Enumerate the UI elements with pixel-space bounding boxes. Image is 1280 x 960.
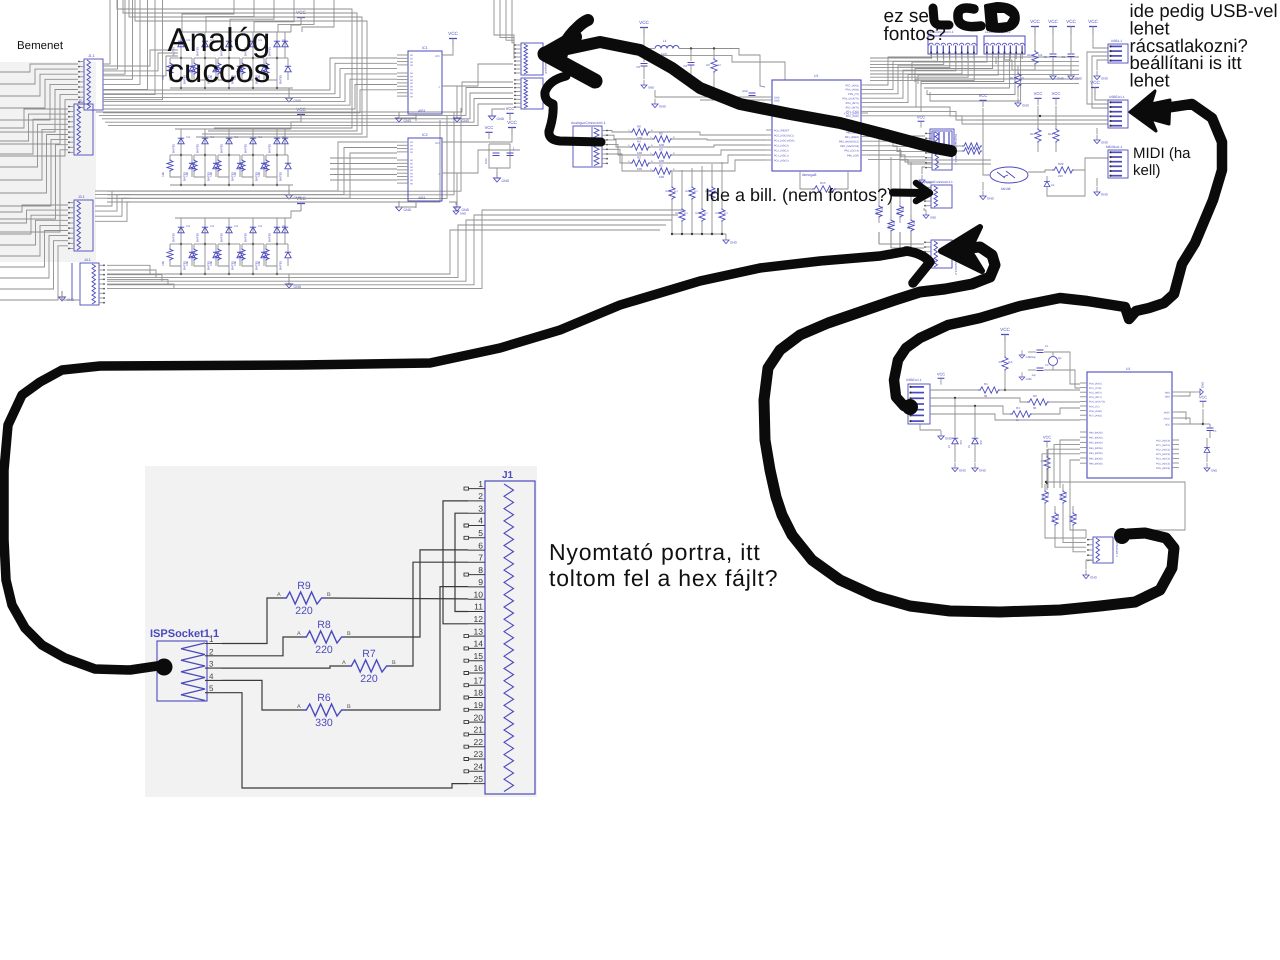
svg-text:R2: R2 (637, 156, 641, 160)
svg-text:C1: C1 (1045, 345, 1049, 348)
svg-text:13: 13 (474, 626, 484, 636)
svg-text:USB1.1: USB1.1 (1111, 39, 1122, 43)
svg-text:GND: GND (1026, 378, 1032, 381)
svg-text:100: 100 (659, 143, 664, 147)
svg-text:C8: C8 (1044, 56, 1048, 59)
svg-text:PC2_(ADC2): PC2_(ADC2) (774, 149, 789, 152)
svg-text:4k7: 4k7 (674, 190, 679, 193)
svg-text:GND: GND (987, 197, 994, 201)
svg-text:R10: R10 (1027, 54, 1032, 57)
svg-text:VCC: VCC (506, 107, 515, 112)
svg-text:7: 7 (478, 553, 483, 563)
svg-text:USBExt1.1: USBExt1.1 (1109, 95, 1125, 99)
svg-text:22: 22 (1021, 77, 1024, 80)
svg-text:GND: GND (497, 117, 505, 121)
svg-text:GND: GND (1101, 193, 1108, 197)
svg-text:VCC: VCC (1165, 423, 1170, 426)
svg-text:9: 9 (478, 577, 483, 587)
svg-text:GND: GND (404, 208, 412, 212)
svg-text:VCC: VCC (639, 20, 649, 25)
svg-text:330: 330 (897, 210, 900, 215)
svg-text:PD3_(INT1): PD3_(INT1) (1089, 396, 1102, 399)
svg-text:68: 68 (1033, 406, 1037, 410)
svg-text:GND: GND (1022, 104, 1029, 108)
svg-text:A: A (277, 592, 281, 598)
svg-text:BAT85: BAT85 (172, 144, 176, 153)
svg-text:PC0_(ADC0): PC0_(ADC0) (1156, 439, 1170, 442)
svg-text:R18: R18 (902, 206, 905, 211)
svg-text:R20: R20 (665, 190, 670, 193)
svg-text:D1: D1 (187, 135, 191, 139)
svg-text:VCC: VCC (507, 120, 517, 125)
svg-text:USBExt1.1: USBExt1.1 (906, 378, 922, 382)
svg-text:B: B (347, 631, 351, 637)
svg-text:VCC: VCC (1043, 435, 1052, 439)
svg-text:PD1_(TXD): PD1_(TXD) (1089, 387, 1102, 390)
svg-text:GND: GND (742, 90, 748, 93)
svg-text:GND: GND (930, 216, 937, 219)
svg-text:PB2_(SS/OC1B): PB2_(SS/OC1B) (840, 145, 859, 148)
svg-text:15: 15 (474, 651, 484, 661)
svg-text:PB6_(MOSI): PB6_(MOSI) (1089, 463, 1103, 466)
svg-text:PD6_(AIN0): PD6_(AIN0) (1089, 410, 1102, 413)
svg-text:6: 6 (478, 540, 483, 550)
svg-text:AREF: AREF (1164, 411, 1171, 414)
svg-text:PC1_(ADC1): PC1_(ADC1) (1156, 444, 1170, 447)
svg-text:20: 20 (474, 712, 484, 722)
svg-text:J3.1: J3.1 (78, 195, 85, 199)
svg-text:330: 330 (1042, 495, 1045, 500)
svg-text:5: 5 (478, 528, 483, 538)
svg-text:PD2_(INT0): PD2_(INT0) (846, 106, 860, 109)
svg-text:GND: GND (1201, 381, 1204, 388)
svg-text:R17: R17 (893, 220, 896, 225)
svg-text:GND: GND (1075, 77, 1082, 81)
svg-text:11: 11 (474, 602, 483, 612)
svg-text:1: 1 (209, 635, 214, 644)
svg-text:PB1_(OC1A): PB1_(OC1A) (844, 150, 859, 153)
svg-text:GND: GND (730, 241, 737, 245)
svg-text:GND: GND (959, 469, 966, 473)
svg-text:GND: GND (502, 179, 510, 183)
svg-text:2: 2 (478, 491, 483, 501)
svg-text:8: 8 (478, 565, 483, 575)
svg-text:R6: R6 (317, 692, 331, 704)
svg-text:PD0_(RXD): PD0_(RXD) (1089, 382, 1102, 385)
svg-text:B: B (347, 704, 351, 710)
svg-text:R12: R12 (1010, 77, 1015, 80)
svg-text:2: 2 (209, 647, 214, 656)
svg-text:BAT85: BAT85 (279, 172, 283, 181)
svg-text:4k7: 4k7 (704, 212, 709, 215)
svg-text:4: 4 (209, 672, 214, 681)
svg-text:PC0_(ADC0): PC0_(ADC0) (774, 159, 789, 162)
svg-text:C9: C9 (1062, 56, 1066, 59)
svg-text:VCC: VCC (435, 55, 440, 58)
svg-text:6N138: 6N138 (1001, 187, 1011, 191)
svg-text:GND: GND (404, 119, 412, 123)
svg-text:VCC: VCC (1030, 19, 1040, 24)
svg-text:VCC: VCC (435, 142, 440, 145)
svg-text:PB1_(MOSI): PB1_(MOSI) (1089, 437, 1103, 440)
svg-text:220: 220 (1058, 174, 1063, 178)
svg-text:12: 12 (474, 614, 484, 624)
svg-text:3: 3 (478, 503, 483, 513)
svg-text:R8: R8 (317, 619, 331, 631)
svg-text:GND: GND (774, 99, 780, 102)
svg-text:AnalogueConnector1.1: AnalogueConnector1.1 (571, 121, 606, 125)
svg-text:C5: C5 (1213, 430, 1217, 433)
svg-text:GND: GND (659, 105, 666, 109)
svg-text:L1: L1 (663, 39, 667, 43)
svg-text:VCC: VCC (1034, 92, 1043, 97)
svg-text:Ide a bill. (nem fontos?): Ide a bill. (nem fontos?) (705, 185, 893, 205)
svg-text:220: 220 (315, 644, 333, 656)
svg-text:VCC: VCC (1199, 395, 1208, 399)
svg-text:R24: R24 (695, 212, 700, 215)
svg-text:16: 16 (474, 663, 484, 673)
svg-text:R25: R25 (715, 212, 720, 215)
svg-text:PD2_(INT0): PD2_(INT0) (1089, 392, 1102, 395)
svg-text:lehet: lehet (1130, 70, 1170, 91)
svg-text:GND: GND (460, 212, 467, 215)
svg-text:PC6_(ADC6): PC6_(ADC6) (1156, 467, 1170, 470)
svg-text:MIDIOut1.1: MIDIOut1.1 (1106, 145, 1123, 149)
svg-text:PC5_(ADC5): PC5_(ADC5) (1156, 462, 1170, 465)
svg-text:330: 330 (908, 224, 911, 229)
svg-text:VCC: VCC (917, 115, 926, 119)
svg-text:VCC: VCC (296, 10, 306, 15)
svg-text:GND: GND (1090, 576, 1097, 580)
svg-text:4k7: 4k7 (724, 212, 729, 215)
svg-text:25: 25 (474, 774, 484, 784)
svg-text:D1: D1 (235, 224, 239, 228)
svg-text:IC1: IC1 (422, 46, 428, 50)
svg-text:D1: D1 (283, 38, 287, 42)
svg-text:R23: R23 (675, 212, 680, 215)
svg-text:220: 220 (360, 673, 378, 685)
svg-text:BAT85: BAT85 (244, 144, 248, 153)
svg-text:1: 1 (478, 479, 483, 489)
svg-text:PB0_(MOSI): PB0_(MOSI) (1089, 431, 1103, 434)
svg-text:23: 23 (474, 749, 484, 759)
svg-text:R9: R9 (297, 580, 311, 592)
svg-text:VCC: VCC (485, 126, 494, 131)
svg-text:Nyomtató portra, itt: Nyomtató portra, itt (549, 539, 761, 565)
svg-text:PC3_(ADC3): PC3_(ADC3) (774, 144, 789, 147)
svg-text:Atmega8: Atmega8 (802, 173, 816, 177)
svg-text:330: 330 (1052, 517, 1055, 522)
svg-text:GND: GND (648, 86, 655, 89)
svg-text:VCC: VCC (937, 372, 946, 376)
svg-text:PB3_(MOSI): PB3_(MOSI) (1089, 447, 1103, 450)
svg-text:VCC: VCC (296, 107, 306, 112)
svg-text:100: 100 (637, 167, 642, 171)
svg-text:BAT85: BAT85 (244, 233, 248, 242)
svg-text:GND: GND (462, 208, 470, 212)
svg-text:PC1_(ADC1): PC1_(ADC1) (774, 154, 789, 157)
svg-text:GND: GND (1165, 391, 1171, 394)
svg-text:PB4_(MISO): PB4_(MISO) (845, 136, 859, 139)
svg-text:D1: D1 (187, 224, 191, 228)
svg-text:VCC: VCC (448, 31, 458, 36)
svg-text:19: 19 (474, 700, 484, 710)
svg-text:10k: 10k (257, 261, 261, 266)
svg-text:4: 4 (478, 516, 483, 526)
svg-text:R4: R4 (637, 140, 641, 144)
svg-text:10k: 10k (209, 172, 213, 177)
svg-text:PD4_(XCK/T0): PD4_(XCK/T0) (842, 98, 859, 101)
svg-text:PB5_(MOSI): PB5_(MOSI) (1089, 457, 1103, 460)
svg-text:VCC: VCC (1048, 19, 1058, 24)
svg-text:R19: R19 (913, 220, 916, 225)
svg-text:VCC: VCC (1000, 327, 1010, 332)
svg-text:PD3_(INT1): PD3_(INT1) (846, 102, 860, 105)
svg-text:A: A (342, 660, 346, 666)
svg-text:kell): kell) (1133, 162, 1161, 179)
svg-text:100: 100 (637, 151, 642, 155)
svg-text:10k: 10k (161, 75, 165, 80)
svg-text:U1: U1 (814, 74, 818, 78)
svg-text:330: 330 (315, 717, 333, 729)
svg-text:VCC: VCC (1090, 80, 1100, 85)
svg-text:MIDI (ha: MIDI (ha (1133, 145, 1191, 162)
svg-text:4k7: 4k7 (694, 190, 699, 193)
svg-text:10: 10 (474, 589, 484, 599)
svg-text:KeyboardConnector1.1: KeyboardConnector1.1 (920, 180, 953, 184)
svg-text:J2.1: J2.1 (78, 99, 85, 103)
svg-text:330: 330 (888, 224, 891, 229)
svg-text:GND: GND (1101, 141, 1108, 145)
svg-text:R13: R13 (1030, 133, 1035, 136)
svg-text:10k: 10k (161, 172, 165, 177)
svg-text:PD7_(AIN1): PD7_(AIN1) (846, 84, 860, 87)
svg-text:4k7: 4k7 (684, 212, 689, 215)
svg-text:10k: 10k (209, 261, 213, 266)
svg-text:R5: R5 (1041, 460, 1045, 463)
svg-text:PC5_(ADC5/SCL): PC5_(ADC5/SCL) (774, 134, 794, 137)
svg-text:D1: D1 (259, 224, 263, 228)
svg-text:C2: C2 (1045, 364, 1049, 367)
svg-text:10k: 10k (161, 261, 165, 266)
svg-text:BAT85: BAT85 (268, 144, 272, 153)
svg-text:17: 17 (474, 675, 484, 685)
svg-text:GND: GND (1165, 395, 1171, 398)
svg-text:22p: 22p (1032, 356, 1037, 359)
svg-text:BAT85: BAT85 (268, 233, 272, 242)
svg-text:GND: GND (979, 469, 986, 473)
svg-text:14: 14 (474, 639, 484, 649)
svg-text:Q1: Q1 (1058, 357, 1062, 360)
svg-text:GND: GND (945, 437, 952, 441)
svg-text:PB3_(MOSI/OC2): PB3_(MOSI/OC2) (839, 141, 859, 144)
svg-text:PC4_(ADC4/SDA): PC4_(ADC4/SDA) (774, 139, 795, 142)
svg-text:10k: 10k (233, 261, 237, 266)
svg-text:R5: R5 (706, 63, 710, 67)
svg-text:18: 18 (474, 688, 484, 698)
svg-text:AVCC: AVCC (1164, 417, 1171, 420)
svg-text:68: 68 (984, 394, 988, 398)
svg-text:A: A (297, 631, 301, 637)
svg-text:BAT85: BAT85 (279, 75, 283, 84)
svg-text:J1: J1 (502, 470, 514, 481)
svg-text:C6: C6 (636, 65, 640, 69)
svg-text:4k7: 4k7 (717, 64, 722, 67)
svg-text:10k: 10k (257, 172, 261, 177)
svg-text:100: 100 (659, 159, 664, 163)
svg-text:R1: R1 (659, 164, 663, 168)
svg-text:PC3_(ADC3): PC3_(ADC3) (1156, 453, 1170, 456)
svg-text:VCC: VCC (1066, 19, 1076, 24)
svg-text:PC4_(ADC4): PC4_(ADC4) (1156, 458, 1170, 461)
svg-text:PB0_(ICP): PB0_(ICP) (847, 154, 859, 157)
svg-text:21: 21 (474, 725, 484, 735)
svg-text:B: B (392, 660, 396, 666)
svg-text:BAT85: BAT85 (220, 233, 224, 242)
svg-text:VCC: VCC (1052, 92, 1061, 97)
svg-text:220: 220 (295, 605, 313, 617)
svg-text:PD4_(XCK/T0): PD4_(XCK/T0) (1089, 401, 1105, 404)
svg-text:R22: R22 (1058, 162, 1064, 166)
svg-text:5: 5 (209, 684, 214, 693)
svg-text:10k: 10k (1038, 54, 1043, 57)
svg-text:D1: D1 (283, 224, 287, 228)
svg-text:PB4_(MOSI): PB4_(MOSI) (1089, 452, 1103, 455)
svg-text:100: 100 (659, 175, 664, 179)
svg-text:4051: 4051 (418, 196, 426, 200)
svg-text:R4: R4 (1016, 406, 1020, 410)
svg-text:R1: R1 (984, 382, 988, 386)
svg-text:XTAL2_(PB7): XTAL2_(PB7) (844, 112, 859, 115)
svg-text:24: 24 (474, 761, 484, 771)
svg-text:U1: U1 (1126, 367, 1130, 371)
svg-text:R3: R3 (659, 148, 663, 152)
svg-text:GND: GND (1211, 469, 1218, 472)
svg-text:Bemenet: Bemenet (17, 40, 64, 52)
svg-text:PD0_(RXD): PD0_(RXD) (846, 115, 859, 118)
svg-text:J1.1: J1.1 (88, 54, 95, 58)
svg-text:PD7_(AIN1): PD7_(AIN1) (1089, 415, 1102, 418)
svg-text:330: 330 (1060, 495, 1063, 500)
svg-text:10k: 10k (185, 261, 189, 266)
svg-text:BAT85: BAT85 (220, 144, 224, 153)
svg-text:VCC: VCC (979, 94, 988, 99)
svg-text:cuccos: cuccos (168, 52, 271, 89)
svg-text:PC2_(ADC2): PC2_(ADC2) (1156, 449, 1170, 452)
svg-text:GND: GND (1101, 77, 1108, 81)
svg-text:BAT85: BAT85 (172, 233, 176, 242)
svg-text:1k5: 1k5 (1008, 361, 1013, 364)
svg-text:IC2: IC2 (422, 133, 428, 137)
svg-text:R3: R3 (999, 361, 1003, 364)
svg-text:R7: R7 (362, 648, 376, 660)
svg-text:PD5_(T1): PD5_(T1) (1089, 405, 1100, 408)
svg-text:R6: R6 (637, 125, 641, 129)
svg-text:100n: 100n (484, 158, 488, 165)
svg-text:3: 3 (209, 660, 214, 669)
svg-text:R21: R21 (685, 190, 690, 193)
svg-text:D3: D3 (1051, 184, 1055, 187)
svg-text:C3: C3 (683, 64, 687, 68)
svg-text:10k: 10k (233, 172, 237, 177)
svg-text:toltom fel a hex fájlt?: toltom fel a hex fájlt? (549, 565, 778, 591)
svg-text:J4.1: J4.1 (84, 258, 91, 262)
svg-text:R14: R14 (1048, 133, 1053, 136)
svg-text:PD5_(T1): PD5_(T1) (848, 93, 859, 96)
svg-text:A: A (297, 704, 301, 710)
svg-text:BAT85: BAT85 (196, 144, 200, 153)
svg-text:3V6: 3V6 (979, 440, 982, 445)
svg-text:22: 22 (474, 737, 484, 747)
svg-text:BAT85: BAT85 (196, 233, 200, 242)
svg-text:VCC: VCC (1088, 19, 1098, 24)
svg-text:22p: 22p (1032, 374, 1037, 377)
svg-text:PB2_(MOSI): PB2_(MOSI) (1089, 442, 1103, 445)
svg-text:D1: D1 (211, 224, 215, 228)
svg-text:GND: GND (1057, 77, 1064, 81)
svg-text:330: 330 (876, 210, 879, 215)
svg-text:R16: R16 (881, 206, 884, 211)
svg-text:PC6_/RESET: PC6_/RESET (774, 129, 790, 132)
svg-text:3V6: 3V6 (959, 440, 962, 445)
svg-text:GND: GND (462, 119, 470, 123)
svg-text:BAT85: BAT85 (279, 261, 283, 270)
svg-text:R2: R2 (1033, 394, 1037, 398)
svg-text:B: B (327, 592, 331, 598)
svg-text:10k: 10k (185, 172, 189, 177)
svg-text:4051: 4051 (418, 109, 426, 113)
svg-text:PD6_(AIN0): PD6_(AIN0) (846, 89, 860, 92)
